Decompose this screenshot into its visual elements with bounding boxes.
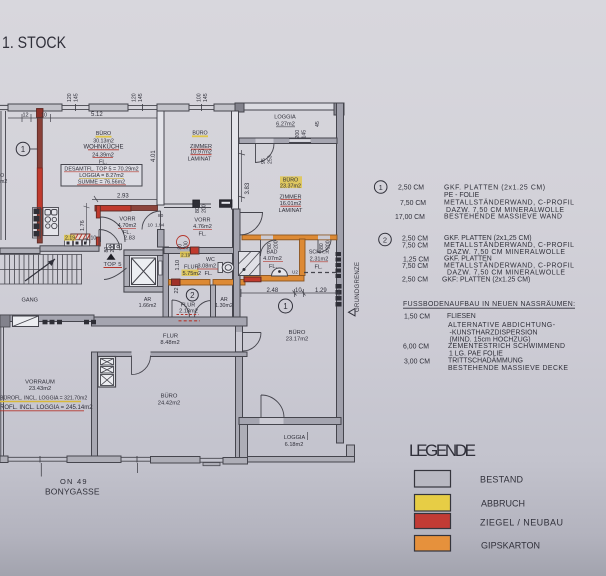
svg-text:BÜROFL. INCL. LOGGIA = 321.70m: BÜROFL. INCL. LOGGIA = 321.70m2 bbox=[0, 395, 87, 402]
svg-text:2.19: 2.19 bbox=[65, 236, 75, 242]
svg-text:m2: m2 bbox=[0, 179, 7, 185]
svg-text:145: 145 bbox=[302, 130, 308, 139]
svg-text:1: 1 bbox=[21, 145, 26, 154]
svg-text:METALLSTÄNDERWAND, C-PROFIL: METALLSTÄNDERWAND, C-PROFIL bbox=[444, 199, 574, 207]
svg-text:23.37m2: 23.37m2 bbox=[280, 183, 301, 189]
svg-text:24.42m2: 24.42m2 bbox=[158, 401, 181, 407]
svg-text:FUSSBODENAUFBAU IN NEUEN NASSR: FUSSBODENAUFBAU IN NEUEN NASSRÄUMEN: bbox=[403, 300, 575, 308]
svg-text:80: 80 bbox=[158, 213, 164, 219]
svg-text:120: 120 bbox=[132, 93, 138, 102]
svg-text:17,00 CM: 17,00 CM bbox=[395, 214, 425, 221]
svg-text:22: 22 bbox=[174, 287, 180, 293]
svg-text:1.30m2: 1.30m2 bbox=[215, 303, 233, 309]
svg-text:80: 80 bbox=[267, 243, 273, 249]
svg-text:1 LG. PAE FOLIE: 1 LG. PAE FOLIE bbox=[449, 351, 503, 358]
svg-text:FL.: FL. bbox=[269, 264, 278, 270]
svg-text:3.08m2: 3.08m2 bbox=[198, 264, 217, 270]
svg-text:GKF. PLATTEN (2x1.25 CM): GKF. PLATTEN (2x1.25 CM) bbox=[444, 185, 545, 192]
svg-text:6.18m2: 6.18m2 bbox=[285, 442, 304, 448]
svg-text:BÜRO: BÜRO bbox=[161, 393, 178, 400]
svg-text:2.48: 2.48 bbox=[267, 288, 279, 294]
svg-text:23.17m2: 23.17m2 bbox=[286, 337, 309, 343]
svg-text:3,00 CM: 3,00 CM bbox=[404, 359, 430, 366]
svg-text:ABBRUCH: ABBRUCH bbox=[481, 499, 525, 509]
svg-text:2,50 CM: 2,50 CM bbox=[402, 277, 428, 284]
svg-text:2.83: 2.83 bbox=[124, 236, 135, 242]
svg-text:120: 120 bbox=[67, 93, 73, 102]
svg-text:7,50 CM: 7,50 CM bbox=[402, 243, 428, 250]
svg-text:VORRAUM: VORRAUM bbox=[25, 380, 55, 386]
svg-text:1.76: 1.76 bbox=[80, 220, 86, 231]
svg-text:145: 145 bbox=[74, 93, 80, 102]
svg-text:GRUNDGRENZE: GRUNDGRENZE bbox=[355, 262, 361, 312]
svg-text:10: 10 bbox=[295, 288, 302, 294]
svg-text:200: 200 bbox=[274, 240, 280, 249]
svg-text:1: 1 bbox=[379, 183, 383, 192]
svg-text:253: 253 bbox=[268, 155, 274, 164]
svg-text:BONYGASSE: BONYGASSE bbox=[45, 487, 100, 497]
svg-text:VORR: VORR bbox=[119, 217, 135, 223]
svg-text:BAD: BAD bbox=[267, 250, 278, 256]
svg-text:1.94: 1.94 bbox=[155, 223, 165, 229]
svg-text:200: 200 bbox=[184, 241, 190, 250]
svg-text:145: 145 bbox=[138, 93, 144, 102]
svg-text:2.93: 2.93 bbox=[117, 194, 129, 200]
svg-text:GKF. PLATTEN (2x1,25 CM): GKF. PLATTEN (2x1,25 CM) bbox=[444, 235, 532, 242]
svg-text:95: 95 bbox=[261, 158, 267, 164]
svg-text:2: 2 bbox=[190, 291, 195, 300]
svg-text:8.48m2: 8.48m2 bbox=[160, 340, 179, 346]
svg-text:1. STOCK: 1. STOCK bbox=[2, 33, 67, 52]
svg-text:10: 10 bbox=[91, 236, 97, 242]
svg-text:FL.: FL. bbox=[205, 271, 214, 277]
svg-text:LAMINAT: LAMINAT bbox=[188, 156, 212, 162]
svg-text:LOGGIA: LOGGIA bbox=[284, 435, 306, 441]
svg-text:GIPSKARTON: GIPSKARTON bbox=[481, 541, 540, 551]
svg-text:FL.: FL. bbox=[198, 232, 207, 238]
svg-text:BESTEHENDE MASSIEVE DECKE: BESTEHENDE MASSIEVE DECKE bbox=[448, 365, 568, 372]
svg-text:5.12: 5.12 bbox=[91, 112, 103, 118]
svg-text:5.75m2: 5.75m2 bbox=[183, 271, 202, 277]
svg-text:3.83: 3.83 bbox=[245, 182, 251, 194]
svg-text:7,50 CM: 7,50 CM bbox=[402, 263, 428, 270]
svg-text:2: 2 bbox=[383, 236, 387, 245]
svg-text:45: 45 bbox=[315, 121, 321, 127]
svg-text:100: 100 bbox=[197, 93, 203, 102]
svg-text:1: 1 bbox=[283, 302, 288, 311]
svg-text:200: 200 bbox=[295, 130, 301, 139]
svg-text:200: 200 bbox=[326, 240, 332, 249]
svg-text:ZEMENTESTRICH SCHWIMMEND: ZEMENTESTRICH SCHWIMMEND bbox=[448, 343, 565, 350]
svg-text:PE - FOLIE: PE - FOLIE bbox=[444, 192, 480, 199]
svg-text:2,50 CM: 2,50 CM bbox=[398, 185, 424, 192]
svg-text:VORR: VORR bbox=[194, 218, 210, 224]
svg-text:2.18m2: 2.18m2 bbox=[179, 309, 198, 315]
svg-text:ZIEGEL / NEUBAU: ZIEGEL / NEUBAU bbox=[480, 518, 563, 528]
svg-text:FLUR: FLUR bbox=[163, 334, 178, 340]
svg-text:2,50 CM: 2,50 CM bbox=[402, 236, 428, 243]
svg-text:80: 80 bbox=[195, 207, 201, 213]
svg-text:BESTEHENDE MASSIEVE WAND: BESTEHENDE MASSIEVE WAND bbox=[444, 214, 562, 221]
svg-text:LEGENDE: LEGENDE bbox=[409, 441, 476, 460]
svg-text:1.66m2: 1.66m2 bbox=[139, 303, 157, 309]
svg-text:1.29: 1.29 bbox=[315, 288, 327, 294]
svg-text:GKF. PLATTEN: GKF. PLATTEN bbox=[444, 255, 492, 262]
svg-text:200: 200 bbox=[202, 204, 208, 213]
svg-text:METALLSTÄNDERWAND, C-PROFIL: METALLSTÄNDERWAND, C-PROFIL bbox=[444, 261, 574, 269]
svg-text:4.01: 4.01 bbox=[151, 150, 157, 162]
svg-text:ON 49: ON 49 bbox=[60, 477, 87, 486]
svg-text:-KUNSTHARZDISPERSION: -KUNSTHARZDISPERSION bbox=[450, 329, 538, 336]
svg-text:12: 12 bbox=[23, 113, 29, 119]
svg-text:GANG: GANG bbox=[22, 298, 38, 304]
svg-text:BESTAND: BESTAND bbox=[480, 475, 524, 485]
svg-text:BÜRO: BÜRO bbox=[289, 329, 306, 336]
svg-text:7,50 CM: 7,50 CM bbox=[400, 200, 426, 207]
svg-text:1,50 CM: 1,50 CM bbox=[404, 314, 430, 321]
svg-text:U2: U2 bbox=[292, 270, 298, 275]
svg-text:10: 10 bbox=[41, 113, 47, 119]
svg-text:WC: WC bbox=[206, 257, 215, 263]
svg-text:2.19: 2.19 bbox=[181, 253, 191, 259]
svg-text:23.43m2: 23.43m2 bbox=[29, 386, 52, 392]
svg-text:145: 145 bbox=[203, 93, 209, 102]
svg-text:METALLSTÄNDERWAND, C-PROFIL: METALLSTÄNDERWAND, C-PROFIL bbox=[444, 241, 574, 249]
svg-text:ROFL. INCL. LOGGIA = 245.14m2: ROFL. INCL. LOGGIA = 245.14m2 bbox=[0, 405, 93, 411]
svg-text:DAZW. 7,50 CM MINERALWOLLE: DAZW. 7,50 CM MINERALWOLLE bbox=[447, 269, 565, 276]
svg-text:1.10: 1.10 bbox=[175, 260, 181, 271]
svg-text:LAMINAT: LAMINAT bbox=[279, 208, 303, 214]
svg-text:LOGGIA: LOGGIA bbox=[274, 115, 296, 121]
svg-text:FLIESEN: FLIESEN bbox=[447, 313, 476, 320]
svg-text:ALTERNATIVE ABDICHTUNG-: ALTERNATIVE ABDICHTUNG- bbox=[448, 322, 555, 329]
svg-text:SCHR.R: SCHR.R bbox=[309, 250, 329, 256]
svg-text:200: 200 bbox=[110, 244, 116, 253]
svg-text:80: 80 bbox=[319, 243, 325, 249]
svg-text:10: 10 bbox=[148, 223, 154, 229]
svg-text:6,00 CM: 6,00 CM bbox=[403, 344, 429, 351]
svg-text:TRITTSCHADÄMMUNG: TRITTSCHADÄMMUNG bbox=[448, 357, 523, 365]
svg-text:FL.: FL. bbox=[314, 265, 323, 271]
svg-text:GKF: PLATTEN (2x1.25 CM): GKF: PLATTEN (2x1.25 CM) bbox=[442, 277, 530, 284]
